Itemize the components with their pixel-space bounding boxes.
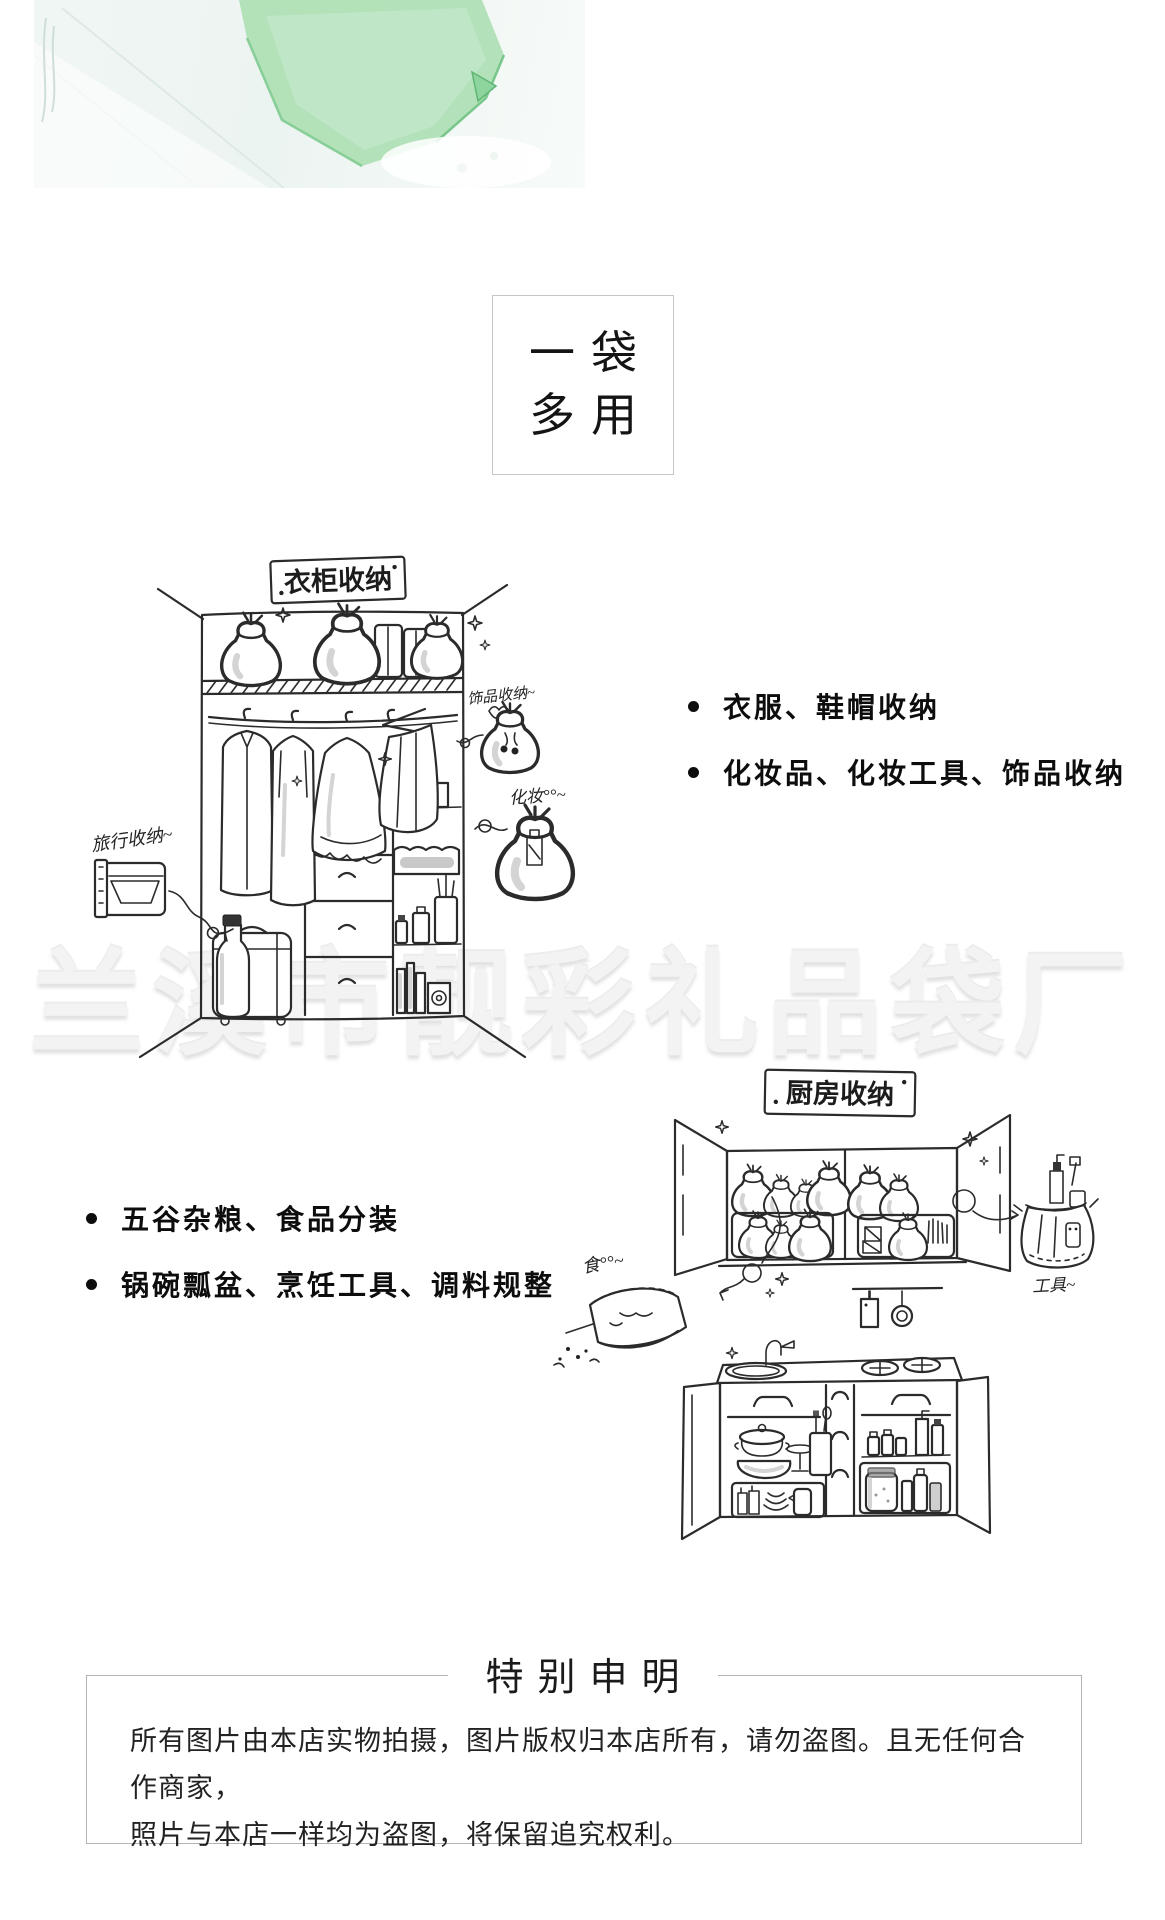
statement-body: 所有图片由本店实物拍摄，图片版权归本店所有，请勿盗图。且无任何合作商家， 照片与… <box>130 1718 1050 1859</box>
annotation-accessories-storage: 饰品收纳~ <box>466 684 536 708</box>
bullet-text: 衣服、鞋帽收纳 <box>723 686 940 726</box>
bullet-dot <box>86 1213 97 1224</box>
annotation-travel-storage: 旅行收纳~ <box>90 824 174 855</box>
product-photo <box>34 0 585 188</box>
wardrobe-label: 衣柜收纳 <box>284 563 393 598</box>
annotation-makeup-storage: 化妆°°~ <box>508 785 566 808</box>
kitchen-illustration: 厨房收纳 <box>470 1065 1115 1565</box>
bullet-dot <box>86 1279 97 1290</box>
statement-line-2: 照片与本店一样均为盗图，将保留追究权利。 <box>130 1812 1050 1859</box>
product-detail-page: 一袋 多用 兰溪市靓彩礼品袋厂 衣柜收纳 <box>0 0 1165 1920</box>
annotation-food: 食°°~ <box>580 1250 625 1277</box>
kitchen-label-plate: 厨房收纳 <box>765 1070 916 1117</box>
badge-line-1: 一袋 <box>513 323 653 385</box>
annotation-tools: 工具~ <box>1032 1275 1076 1296</box>
kitchen-label: 厨房收纳 <box>786 1077 895 1110</box>
list-item: 化妆品、化妆工具、饰品收纳 <box>688 752 1126 792</box>
badge-box: 一袋 多用 <box>492 295 674 475</box>
wardrobe-illustration: 衣柜收纳 <box>85 545 577 1060</box>
organza-bag-photo-art <box>34 0 585 188</box>
badge-line-2: 多用 <box>513 385 653 447</box>
bullet-dot <box>688 767 699 778</box>
bullet-text: 五谷杂粮、食品分装 <box>121 1198 400 1238</box>
list-item: 衣服、鞋帽收纳 <box>688 686 1126 726</box>
statement-title: 特别申明 <box>447 1646 717 1701</box>
statement-line-1: 所有图片由本店实物拍摄，图片版权归本店所有，请勿盗图。且无任何合作商家， <box>130 1718 1050 1812</box>
bullet-text: 化妆品、化妆工具、饰品收纳 <box>723 752 1126 792</box>
bullet-dot <box>688 701 699 712</box>
wardrobe-label-plate: 衣柜收纳 <box>270 557 405 604</box>
wardrobe-bullet-list: 衣服、鞋帽收纳 化妆品、化妆工具、饰品收纳 <box>688 686 1126 792</box>
